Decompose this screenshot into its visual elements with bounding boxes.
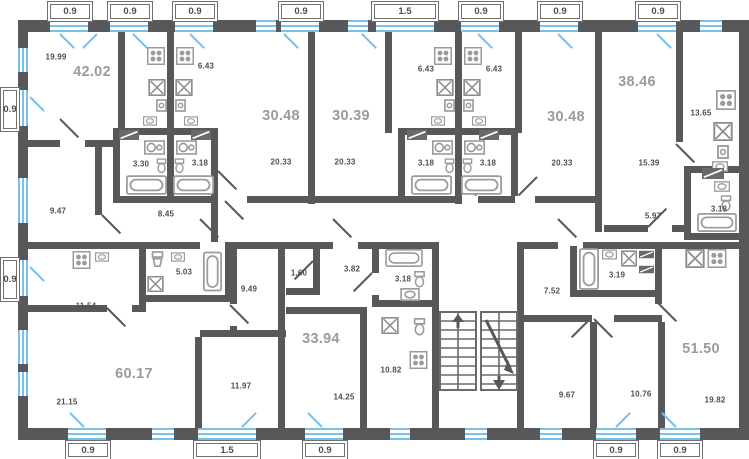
door-swing-icon — [101, 214, 121, 234]
bathtub-icon — [579, 247, 599, 291]
room-area-label: 3.18 — [395, 275, 411, 284]
balcony-door-swing-icon — [656, 33, 672, 49]
room-area-label: 5.03 — [176, 268, 192, 277]
wall — [595, 32, 602, 232]
room-area-label: 3.82 — [344, 265, 360, 274]
boiler-icon — [156, 99, 167, 112]
window — [660, 428, 700, 440]
window — [390, 428, 410, 440]
window-dimension-box: 0.9 — [458, 1, 504, 22]
room-area-label: 20.33 — [270, 158, 291, 167]
balcony-door-swing-icon — [132, 33, 148, 49]
washer-icon — [148, 79, 166, 96]
window-dimension-box: 0.9 — [302, 440, 348, 459]
room-area-label: 8.45 — [158, 210, 174, 219]
window-dimension-label: 0.9 — [123, 6, 136, 17]
window — [348, 20, 368, 32]
bathtub-icon — [461, 175, 502, 195]
sink-icon — [714, 181, 730, 192]
wall — [614, 315, 662, 322]
door-swing-icon — [332, 218, 352, 238]
balcony-door-swing-icon — [283, 33, 299, 49]
balcony-door-swing-icon — [69, 412, 85, 428]
toilet-icon — [444, 158, 455, 174]
stove-icon — [147, 47, 165, 65]
door-swing-icon — [217, 170, 237, 190]
wall — [313, 249, 320, 289]
wall — [372, 300, 436, 307]
room-area-label: 19.82 — [704, 396, 725, 405]
wall — [27, 242, 200, 249]
window-dimension-box: 0.9 — [537, 1, 583, 22]
window-dimension-label: 0.9 — [188, 6, 201, 17]
window — [198, 428, 256, 440]
apartment-area-label[interactable]: 60.17 — [115, 366, 153, 382]
washing-machine-icon — [176, 140, 197, 155]
window-dimension-box: 0.9 — [47, 1, 93, 22]
wall — [739, 20, 749, 440]
door-swing-icon — [557, 218, 577, 238]
toilet-icon — [174, 158, 185, 174]
door-swing-icon — [106, 307, 126, 327]
room-area-label: 3.18 — [711, 205, 727, 214]
window-dimension-label: 0.9 — [3, 104, 16, 115]
sink-icon — [431, 116, 445, 126]
room-area-label: 6.43 — [198, 62, 214, 71]
wall — [286, 288, 320, 295]
wall — [358, 242, 432, 249]
apartment-area-label[interactable]: 30.48 — [262, 108, 300, 124]
room-area-label: 11.54 — [76, 302, 97, 311]
window — [540, 428, 562, 440]
sink-icon — [400, 288, 420, 301]
sink-icon — [95, 252, 109, 262]
wall — [660, 242, 740, 249]
room-area-label: 14.25 — [333, 393, 354, 402]
bathtub-icon — [203, 250, 222, 293]
bathtub-icon — [696, 213, 738, 232]
washer-icon — [175, 79, 193, 96]
toilet-icon — [462, 158, 473, 174]
wall — [372, 245, 379, 273]
wall — [85, 140, 118, 147]
room-area-label: 19.99 — [45, 53, 66, 62]
room-area-label: 15.39 — [638, 159, 659, 168]
bathtub-icon — [126, 175, 167, 195]
sink-icon — [143, 116, 157, 126]
bathtub-icon — [381, 249, 427, 267]
cabinet-icon — [478, 130, 500, 140]
window-dimension-label: 0.9 — [673, 445, 686, 456]
room-area-label: 13.65 — [690, 109, 711, 118]
room-area-label: 21.15 — [56, 398, 77, 407]
balcony-door-swing-icon — [361, 33, 377, 49]
wall — [308, 32, 315, 204]
room-area-label: 3.18 — [480, 159, 496, 168]
window-dimension-box: 0.9 — [172, 1, 218, 22]
balcony-door-swing-icon — [29, 266, 45, 282]
window-dimension-label: 0.9 — [3, 274, 16, 285]
stove-icon — [409, 351, 428, 369]
stove-icon — [464, 47, 482, 65]
door-swing-icon — [518, 176, 538, 196]
apartment-area-label[interactable]: 30.39 — [332, 108, 370, 124]
wall — [570, 290, 662, 297]
window — [152, 428, 174, 440]
toilet-icon — [413, 271, 426, 288]
wall — [684, 233, 740, 240]
stove-icon — [176, 47, 194, 65]
boiler-icon — [175, 99, 186, 112]
wall — [120, 196, 218, 203]
washer-icon — [147, 276, 164, 292]
balcony-door-swing-icon — [29, 96, 45, 112]
room-area-label: 6.43 — [486, 65, 502, 74]
wall — [18, 428, 749, 440]
sink-icon — [171, 252, 185, 262]
apartment-area-label[interactable]: 33.94 — [302, 331, 340, 347]
room-area-label: 9.47 — [50, 207, 66, 216]
room-area-label: 6.43 — [418, 65, 434, 74]
cabinet-icon — [639, 264, 654, 275]
washer-icon — [621, 250, 637, 267]
wall — [278, 242, 285, 428]
window — [18, 372, 28, 396]
toilet-icon — [413, 318, 426, 336]
wall — [590, 322, 597, 428]
window-dimension-label: 1.5 — [220, 445, 233, 456]
room-area-label: 10.82 — [380, 366, 401, 375]
apartment-area-label[interactable]: 30.48 — [547, 109, 585, 125]
window-dimension-box: 0.9 — [0, 257, 20, 302]
sink-pedestal-icon — [150, 251, 165, 268]
staircase — [436, 306, 521, 396]
window-dimension-box: 0.9 — [278, 1, 324, 22]
wall — [515, 32, 522, 133]
wall — [676, 32, 683, 142]
wall — [524, 242, 558, 249]
wall — [200, 330, 286, 337]
room-area-label: 3.30 — [133, 160, 149, 169]
stove-icon — [716, 90, 736, 110]
balcony-door-swing-icon — [615, 412, 631, 428]
boiler-icon — [463, 99, 474, 112]
boiler-icon — [444, 99, 455, 112]
room-area-label: 3.18 — [192, 159, 208, 168]
window-dimension-label: 0.9 — [63, 6, 76, 17]
wall — [247, 196, 458, 203]
wall — [167, 32, 174, 136]
bathtub-icon — [411, 175, 452, 195]
window-dimension-label: 0.9 — [553, 6, 566, 17]
window — [596, 428, 636, 440]
washer-icon — [463, 79, 481, 96]
window-dimension-label: 0.9 — [318, 445, 331, 456]
wall — [604, 225, 648, 232]
window-dimension-box: 0.9 — [657, 440, 703, 459]
wall — [398, 135, 405, 196]
room-area-label: 20.33 — [551, 159, 572, 168]
room-area-label: 20.33 — [334, 158, 355, 167]
cabinet-icon — [406, 130, 428, 140]
window-dimension-label: 0.9 — [609, 445, 622, 456]
cabinet-icon — [639, 249, 654, 260]
washer-icon — [713, 122, 733, 141]
window — [465, 428, 487, 440]
bathtub-icon — [173, 175, 214, 195]
room-area-label: 3.19 — [609, 271, 625, 280]
wall — [230, 249, 237, 304]
room-area-label: 3.18 — [418, 159, 434, 168]
wall — [95, 147, 102, 215]
cabinet-icon — [700, 168, 726, 179]
window-dimension-box: 1.5 — [371, 1, 439, 22]
room-area-label: 1.60 — [291, 269, 307, 278]
wall — [655, 242, 662, 304]
toilet-icon — [156, 158, 167, 174]
cabinet-icon — [190, 130, 212, 140]
room-area-label: 11.97 — [231, 382, 252, 391]
window-dimension-label: 0.9 — [81, 445, 94, 456]
cabinet-icon — [118, 130, 140, 140]
window-dimension-box: 1.5 — [193, 440, 261, 459]
balcony-door-swing-icon — [59, 33, 75, 49]
washing-machine-icon — [432, 140, 453, 155]
wall — [535, 196, 595, 203]
wall — [143, 295, 229, 302]
wall — [360, 314, 367, 428]
door-swing-icon — [59, 118, 79, 138]
wall — [672, 225, 684, 232]
floor-plan: 0.9 0.9 0.9 0.9 1.5 0.9 0.9 0.9 0.9 1.5 … — [0, 0, 749, 459]
room-area-label: 5.97 — [645, 212, 661, 221]
window-dimension-box: 0.9 — [0, 87, 20, 132]
balcony-door-swing-icon — [241, 412, 257, 428]
apartment-area-label[interactable]: 51.50 — [682, 341, 720, 357]
apartment-area-label[interactable]: 42.02 — [73, 64, 111, 80]
room-area-label: 9.49 — [241, 285, 257, 294]
window — [18, 48, 28, 72]
stove-icon — [72, 251, 91, 269]
stove-icon — [707, 249, 727, 268]
window — [68, 428, 106, 440]
washing-machine-icon — [464, 140, 485, 155]
wall — [684, 173, 691, 233]
wall — [195, 337, 202, 428]
washer-icon — [381, 317, 399, 334]
window-dimension-label: 0.9 — [474, 6, 487, 17]
balcony-door-swing-icon — [557, 33, 573, 49]
washing-machine-icon — [144, 140, 165, 155]
door-swing-icon — [353, 272, 373, 292]
window-dimension-label: 1.5 — [398, 6, 411, 17]
door-swing-icon — [224, 200, 244, 220]
window-dimension-label: 0.9 — [651, 6, 664, 17]
wall — [385, 32, 392, 133]
window — [18, 330, 28, 364]
window — [305, 428, 343, 440]
window-dimension-box: 0.9 — [593, 440, 639, 459]
wall — [524, 315, 592, 322]
balcony-door-swing-icon — [82, 33, 98, 49]
wall — [27, 140, 60, 147]
sink-icon — [472, 116, 486, 126]
stove-icon — [434, 47, 452, 65]
room-area-label: 7.52 — [544, 287, 560, 296]
apartment-area-label[interactable]: 38.46 — [618, 74, 656, 90]
sink-icon — [184, 116, 198, 126]
boiler-icon — [717, 145, 729, 159]
wall — [478, 196, 515, 203]
window — [256, 20, 276, 32]
window — [18, 178, 28, 223]
balcony-door-swing-icon — [307, 412, 323, 428]
washer-icon — [436, 79, 454, 96]
window-dimension-label: 0.9 — [294, 6, 307, 17]
window-dimension-box: 0.9 — [635, 1, 681, 22]
door-swing-icon — [229, 304, 249, 324]
wall — [286, 307, 367, 314]
sink-icon — [602, 249, 617, 260]
room-area-label: 9.67 — [559, 391, 575, 400]
washer-icon — [685, 249, 705, 268]
room-area-label: 10.76 — [630, 390, 651, 399]
window — [700, 20, 722, 32]
window-dimension-box: 0.9 — [65, 440, 111, 459]
window-dimension-box: 0.9 — [107, 1, 153, 22]
wall — [132, 305, 146, 312]
door-swing-icon — [675, 143, 695, 163]
wall — [511, 135, 518, 196]
wall — [118, 32, 125, 136]
